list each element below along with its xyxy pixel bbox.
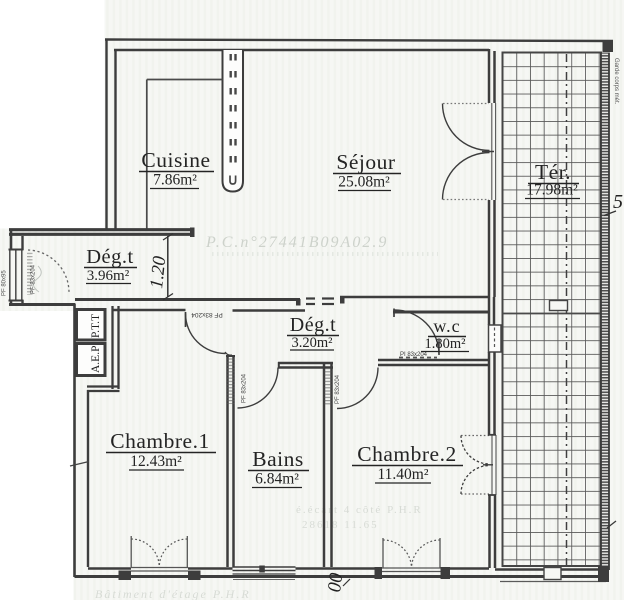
svg-text:Bains: Bains	[252, 447, 303, 471]
svg-text:PF 80x95: PF 80x95	[2, 270, 8, 296]
svg-text:Cuisine: Cuisine	[141, 148, 210, 172]
svg-text:11.40m²: 11.40m²	[377, 466, 428, 483]
svg-text:Séjour: Séjour	[336, 150, 395, 174]
svg-text:Garde corps mét.: Garde corps mét.	[613, 58, 619, 105]
svg-text:Tér.: Tér.	[535, 160, 571, 184]
svg-text:A.E.P: A.E.P	[90, 346, 102, 373]
svg-text:PF 83x204: PF 83x204	[31, 264, 37, 294]
svg-text:PF 83x204: PF 83x204	[242, 373, 248, 403]
svg-text:3.20m²: 3.20m²	[291, 335, 333, 351]
svg-text:6.84m²: 6.84m²	[255, 471, 299, 488]
svg-text:Bâtiment d'étage P.H.R: Bâtiment d'étage P.H.R	[95, 587, 251, 600]
svg-text:12.43m²: 12.43m²	[130, 453, 182, 470]
svg-text:1.20: 1.20	[147, 254, 170, 289]
svg-text:7.86m²: 7.86m²	[153, 172, 197, 189]
svg-text:Chambre.1: Chambre.1	[110, 429, 209, 453]
svg-text:28618 11.65: 28618 11.65	[302, 519, 379, 531]
svg-text:Dég.t: Dég.t	[290, 314, 336, 336]
svg-text:Chambre.2: Chambre.2	[357, 442, 456, 466]
svg-text:1.80m²: 1.80m²	[424, 336, 466, 352]
svg-text:w.c: w.c	[433, 316, 460, 336]
svg-text:Dég.t: Dég.t	[86, 246, 133, 268]
svg-text:00: 00	[324, 571, 347, 593]
svg-text:PI 83x204: PI 83x204	[400, 352, 428, 358]
svg-text:é.écart 4 côté P.H.R: é.écart 4 côté P.H.R	[296, 504, 423, 516]
svg-text:5: 5	[613, 191, 623, 213]
svg-text:25.08m²: 25.08m²	[338, 174, 390, 191]
svg-text:P.C.n°27441B09A02.9: P.C.n°27441B09A02.9	[205, 234, 388, 251]
svg-text:17.98m²: 17.98m²	[526, 182, 578, 199]
svg-text:PF 83x204: PF 83x204	[335, 374, 341, 404]
svg-text:3.96m²: 3.96m²	[87, 268, 130, 284]
svg-text:PF 83x204: PF 83x204	[191, 311, 223, 318]
svg-text:P.T.T: P.T.T	[90, 314, 102, 338]
